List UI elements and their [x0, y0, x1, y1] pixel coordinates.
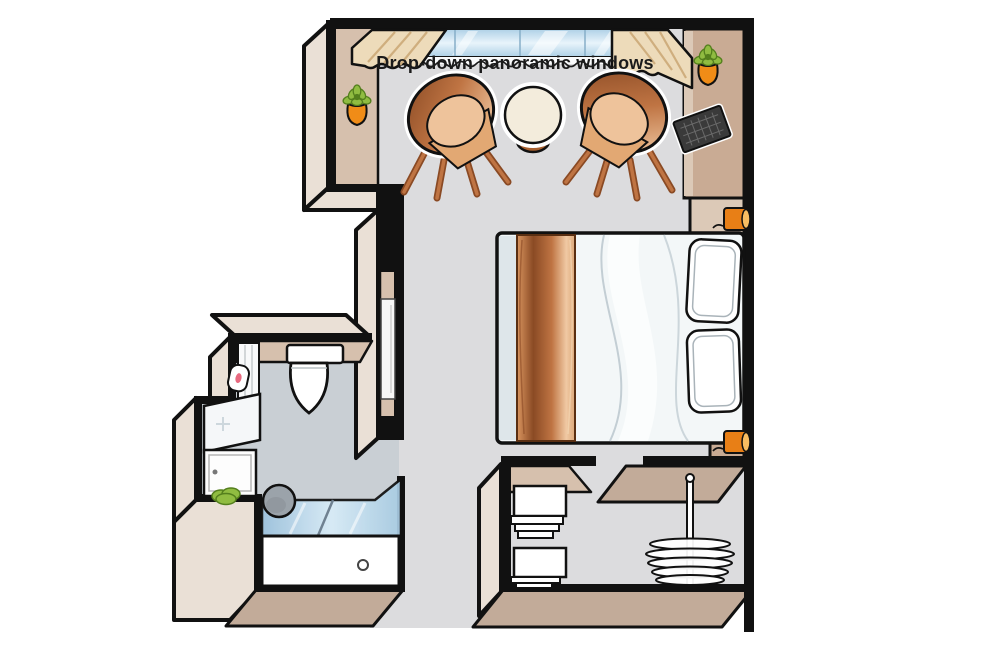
plant-pot — [698, 64, 717, 85]
window-label: Drop-down panoramic windows — [376, 53, 653, 73]
pillow-top — [686, 239, 742, 324]
shower-head-shade — [266, 497, 286, 513]
wardrobe-shelf-face — [598, 466, 746, 502]
lamp-cap — [742, 433, 750, 452]
vanity-sink — [204, 394, 260, 505]
wall-slope-bath-bottom — [226, 590, 403, 626]
wall-column-foot — [376, 416, 404, 440]
wall-left-upper — [326, 20, 336, 192]
double-bed — [497, 233, 744, 443]
wall-bath-top — [228, 333, 372, 341]
wall-column-upper — [376, 184, 404, 272]
lamp-cap — [742, 210, 750, 229]
bed-shade-left — [499, 236, 517, 440]
floor-plan-canvas: Drop-down panoramic windows — [0, 0, 998, 665]
plant-pot — [347, 104, 366, 125]
wall-slope-closet-bottom — [473, 590, 752, 627]
toilet-tank — [287, 345, 343, 363]
wall-top — [330, 18, 754, 29]
cabin-floor-plan: Drop-down panoramic windows — [0, 0, 998, 665]
pillow-bottom — [687, 329, 742, 413]
wall-face-left-top — [304, 24, 328, 210]
wall-face-closet-left — [479, 464, 501, 616]
vanity-handle — [213, 470, 218, 475]
wall-closet-top-left — [501, 456, 596, 466]
table-top — [505, 87, 561, 143]
shower-tray — [262, 536, 399, 586]
wall-niche — [194, 396, 202, 502]
hangers — [646, 539, 734, 586]
bed-runner — [517, 235, 575, 441]
door-panel — [381, 299, 395, 399]
wall-closet-top-right — [643, 456, 754, 466]
bathroom-door — [381, 299, 395, 399]
wall-face-bath-top — [212, 315, 368, 335]
shower-drain — [358, 560, 368, 570]
wall-closet-left — [501, 456, 511, 592]
